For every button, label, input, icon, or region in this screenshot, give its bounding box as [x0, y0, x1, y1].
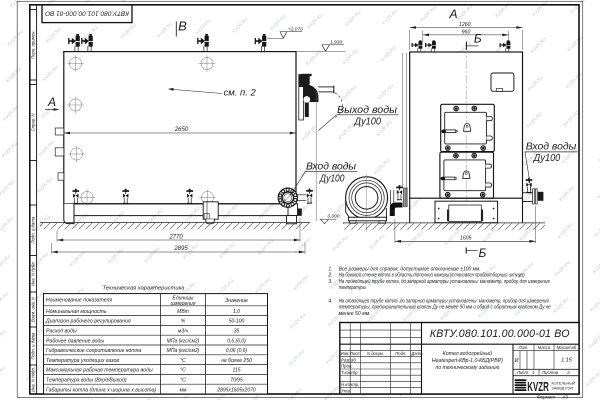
svg-text:На отводящей трубе котла ,до з: На отводящей трубе котла ,до запорной ар…	[339, 297, 549, 304]
svg-text:2.: 2.	[327, 273, 332, 279]
svg-text:2895х1605х2070: 2895х1605х2070	[216, 388, 256, 394]
svg-text:2: 2	[566, 370, 570, 375]
svg-text:КВТУ.080.101.00.000-01 ВО: КВТУ.080.101.00.000-01 ВО	[45, 10, 129, 17]
svg-text:2650: 2650	[174, 127, 189, 133]
svg-text:МПа (кгс/см2): МПа (кгс/см2)	[167, 338, 200, 344]
svg-text:Максимальная рабочая температу: Максимальная рабочая температура воды	[46, 368, 153, 374]
svg-text:температуры.: температуры.	[339, 285, 367, 291]
svg-text:0,06 (0,6): 0,06 (0,6)	[226, 348, 248, 354]
svg-text:1260: 1260	[459, 22, 471, 28]
svg-text:1,0: 1,0	[233, 309, 240, 315]
svg-text:Перв. примен.: Перв. примен.	[30, 30, 35, 59]
svg-text:70/95: 70/95	[230, 378, 243, 384]
svg-text:°С: °С	[180, 368, 186, 374]
svg-text:На подводящей трубе котла, до: На подводящей трубе котла, до запорной а…	[339, 278, 550, 285]
svg-text:2770: 2770	[168, 234, 183, 240]
svg-text:Номинальная мощность: Номинальная мощность	[46, 309, 107, 315]
svg-text:Техническая характеристика: Техническая характеристика	[102, 285, 185, 291]
svg-text:KVZR: KVZR	[527, 380, 549, 394]
svg-text:35: 35	[234, 329, 240, 335]
svg-text:И: И	[515, 358, 519, 364]
svg-text:Температура воды (Вход/Выход): Температура воды (Вход/Выход)	[46, 378, 127, 384]
svg-text:Б: Б	[478, 246, 486, 260]
svg-text:Вход воды: Вход воды	[306, 162, 357, 173]
svg-text:А: А	[47, 95, 56, 109]
svg-text:Вход воды: Вход воды	[526, 142, 577, 153]
svg-text:не более 250: не более 250	[221, 358, 252, 364]
svg-text:Н.контр.: Н.контр.	[341, 382, 360, 387]
svg-text:°С: °С	[180, 378, 186, 384]
svg-text:%: %	[181, 319, 186, 325]
svg-text:Габариты котла (длина х ширина: Габариты котла (длина х ширина х высота)	[46, 388, 156, 394]
svg-text:1,930: 1,930	[330, 40, 342, 46]
svg-text:Наименование показателя: Наименование показателя	[46, 298, 112, 304]
svg-text:Изм.: Изм.	[341, 351, 350, 356]
svg-text:Подп.: Подп.	[395, 351, 406, 356]
svg-text:960: 960	[462, 29, 471, 35]
svg-text:КВТУ.080.101.00.000-01 ВО: КВТУ.080.101.00.000-01 ВО	[430, 328, 570, 340]
svg-text:Ду100: Ду100	[354, 117, 382, 128]
svg-text:+2,070: +2,070	[288, 27, 303, 33]
svg-text:4.: 4.	[328, 298, 332, 304]
svg-text:Утв.: Утв.	[341, 389, 351, 394]
svg-text:2895: 2895	[173, 246, 188, 252]
svg-text:Значение: Значение	[225, 298, 248, 304]
svg-text:0,6 (6,0): 0,6 (6,0)	[227, 338, 246, 344]
svg-text:50-100: 50-100	[229, 319, 245, 325]
svg-text:Ду100: Ду100	[319, 174, 345, 185]
svg-text:°С: °С	[180, 358, 186, 364]
svg-text:На боковой стенке котла в обла: На боковой стенке котла в области топочн…	[339, 272, 525, 279]
svg-text:температуры, предохранительный: температуры, предохранительный клапан Ду…	[339, 304, 551, 311]
svg-text:Лист: Лист	[516, 370, 529, 375]
svg-text:1605: 1605	[460, 236, 472, 242]
svg-text:Б: Б	[474, 32, 482, 46]
svg-text:Дата: Дата	[410, 351, 423, 356]
svg-text:Справ. N: Справ. N	[30, 113, 35, 132]
svg-text:А3: А3	[561, 395, 568, 400]
svg-text:мм: мм	[180, 388, 187, 394]
svg-text:Котел водогрейный: Котел водогрейный	[443, 350, 492, 357]
svg-text:измерения: измерения	[170, 301, 195, 307]
svg-text:Листов: Листов	[541, 370, 559, 375]
svg-text:Разраб.: Разраб.	[341, 357, 357, 362]
svg-text:Расход воды: Расход воды	[46, 329, 77, 335]
svg-text:Диапазон рабочего регулировани: Диапазон рабочего регулирования	[45, 319, 131, 325]
svg-text:3.: 3.	[328, 279, 332, 285]
svg-text:Взам. инв. N: Взам. инв. N	[30, 296, 35, 322]
svg-text:А: А	[448, 7, 457, 21]
svg-text:Heatexpert-КВр-1,0-КБД(РВР): Heatexpert-КВр-1,0-КБД(РВР)	[432, 358, 503, 364]
svg-text:Все размеры для справок, допус: Все размеры для справок, допустимое откл…	[339, 266, 481, 272]
svg-text:1.: 1.	[328, 266, 332, 272]
svg-text:Т.контр.: Т.контр.	[341, 370, 359, 375]
svg-text:Инв. N дубл.: Инв. N дубл.	[30, 261, 35, 286]
svg-text:1:15: 1:15	[561, 358, 573, 364]
svg-text:по техническому заданию: по техническому заданию	[435, 365, 499, 371]
svg-text:Пров.: Пров.	[341, 364, 353, 369]
svg-text:В: В	[178, 19, 187, 34]
svg-text:Температура уходящих газов: Температура уходящих газов	[46, 358, 119, 364]
svg-text:0,000: 0,000	[328, 213, 340, 219]
svg-text:см. п. 2: см. п. 2	[224, 88, 257, 99]
svg-text:N докум.: N докум.	[367, 351, 384, 356]
svg-text:Ду100: Ду100	[533, 153, 561, 164]
svg-text:Лит.: Лит.	[518, 345, 529, 350]
svg-text:м3/ч: м3/ч	[178, 329, 189, 335]
svg-text:ЗАВОД РЭП: ЗАВОД РЭП	[552, 387, 574, 391]
svg-text:КОТЕЛЬНЫЙ: КОТЕЛЬНЫЙ	[552, 382, 576, 386]
svg-text:Подп. и дата: Подп. и дата	[30, 332, 35, 360]
svg-text:Лист: Лист	[349, 351, 361, 356]
svg-text:Формат: Формат	[537, 395, 555, 400]
svg-text:Масса: Масса	[538, 345, 551, 350]
svg-text:МВт: МВт	[177, 309, 189, 315]
svg-text:Выход воды: Выход воды	[337, 105, 398, 116]
svg-text:Рабочее давление воды: Рабочее давление воды	[46, 338, 104, 344]
svg-text:115: 115	[233, 368, 241, 374]
svg-text:менее 50 мм.: менее 50 мм.	[339, 311, 371, 317]
svg-text:Подп. и дата: Подп. и дата	[30, 216, 35, 244]
svg-text:Инв. N подл.: Инв. N подл.	[30, 367, 35, 392]
svg-text:МПа (кгс/см2): МПа (кгс/см2)	[167, 348, 200, 354]
svg-text:Масштаб: Масштаб	[557, 345, 577, 350]
svg-text:Гидравлическое сопротивление к: Гидравлическое сопротивление котла	[46, 348, 141, 354]
